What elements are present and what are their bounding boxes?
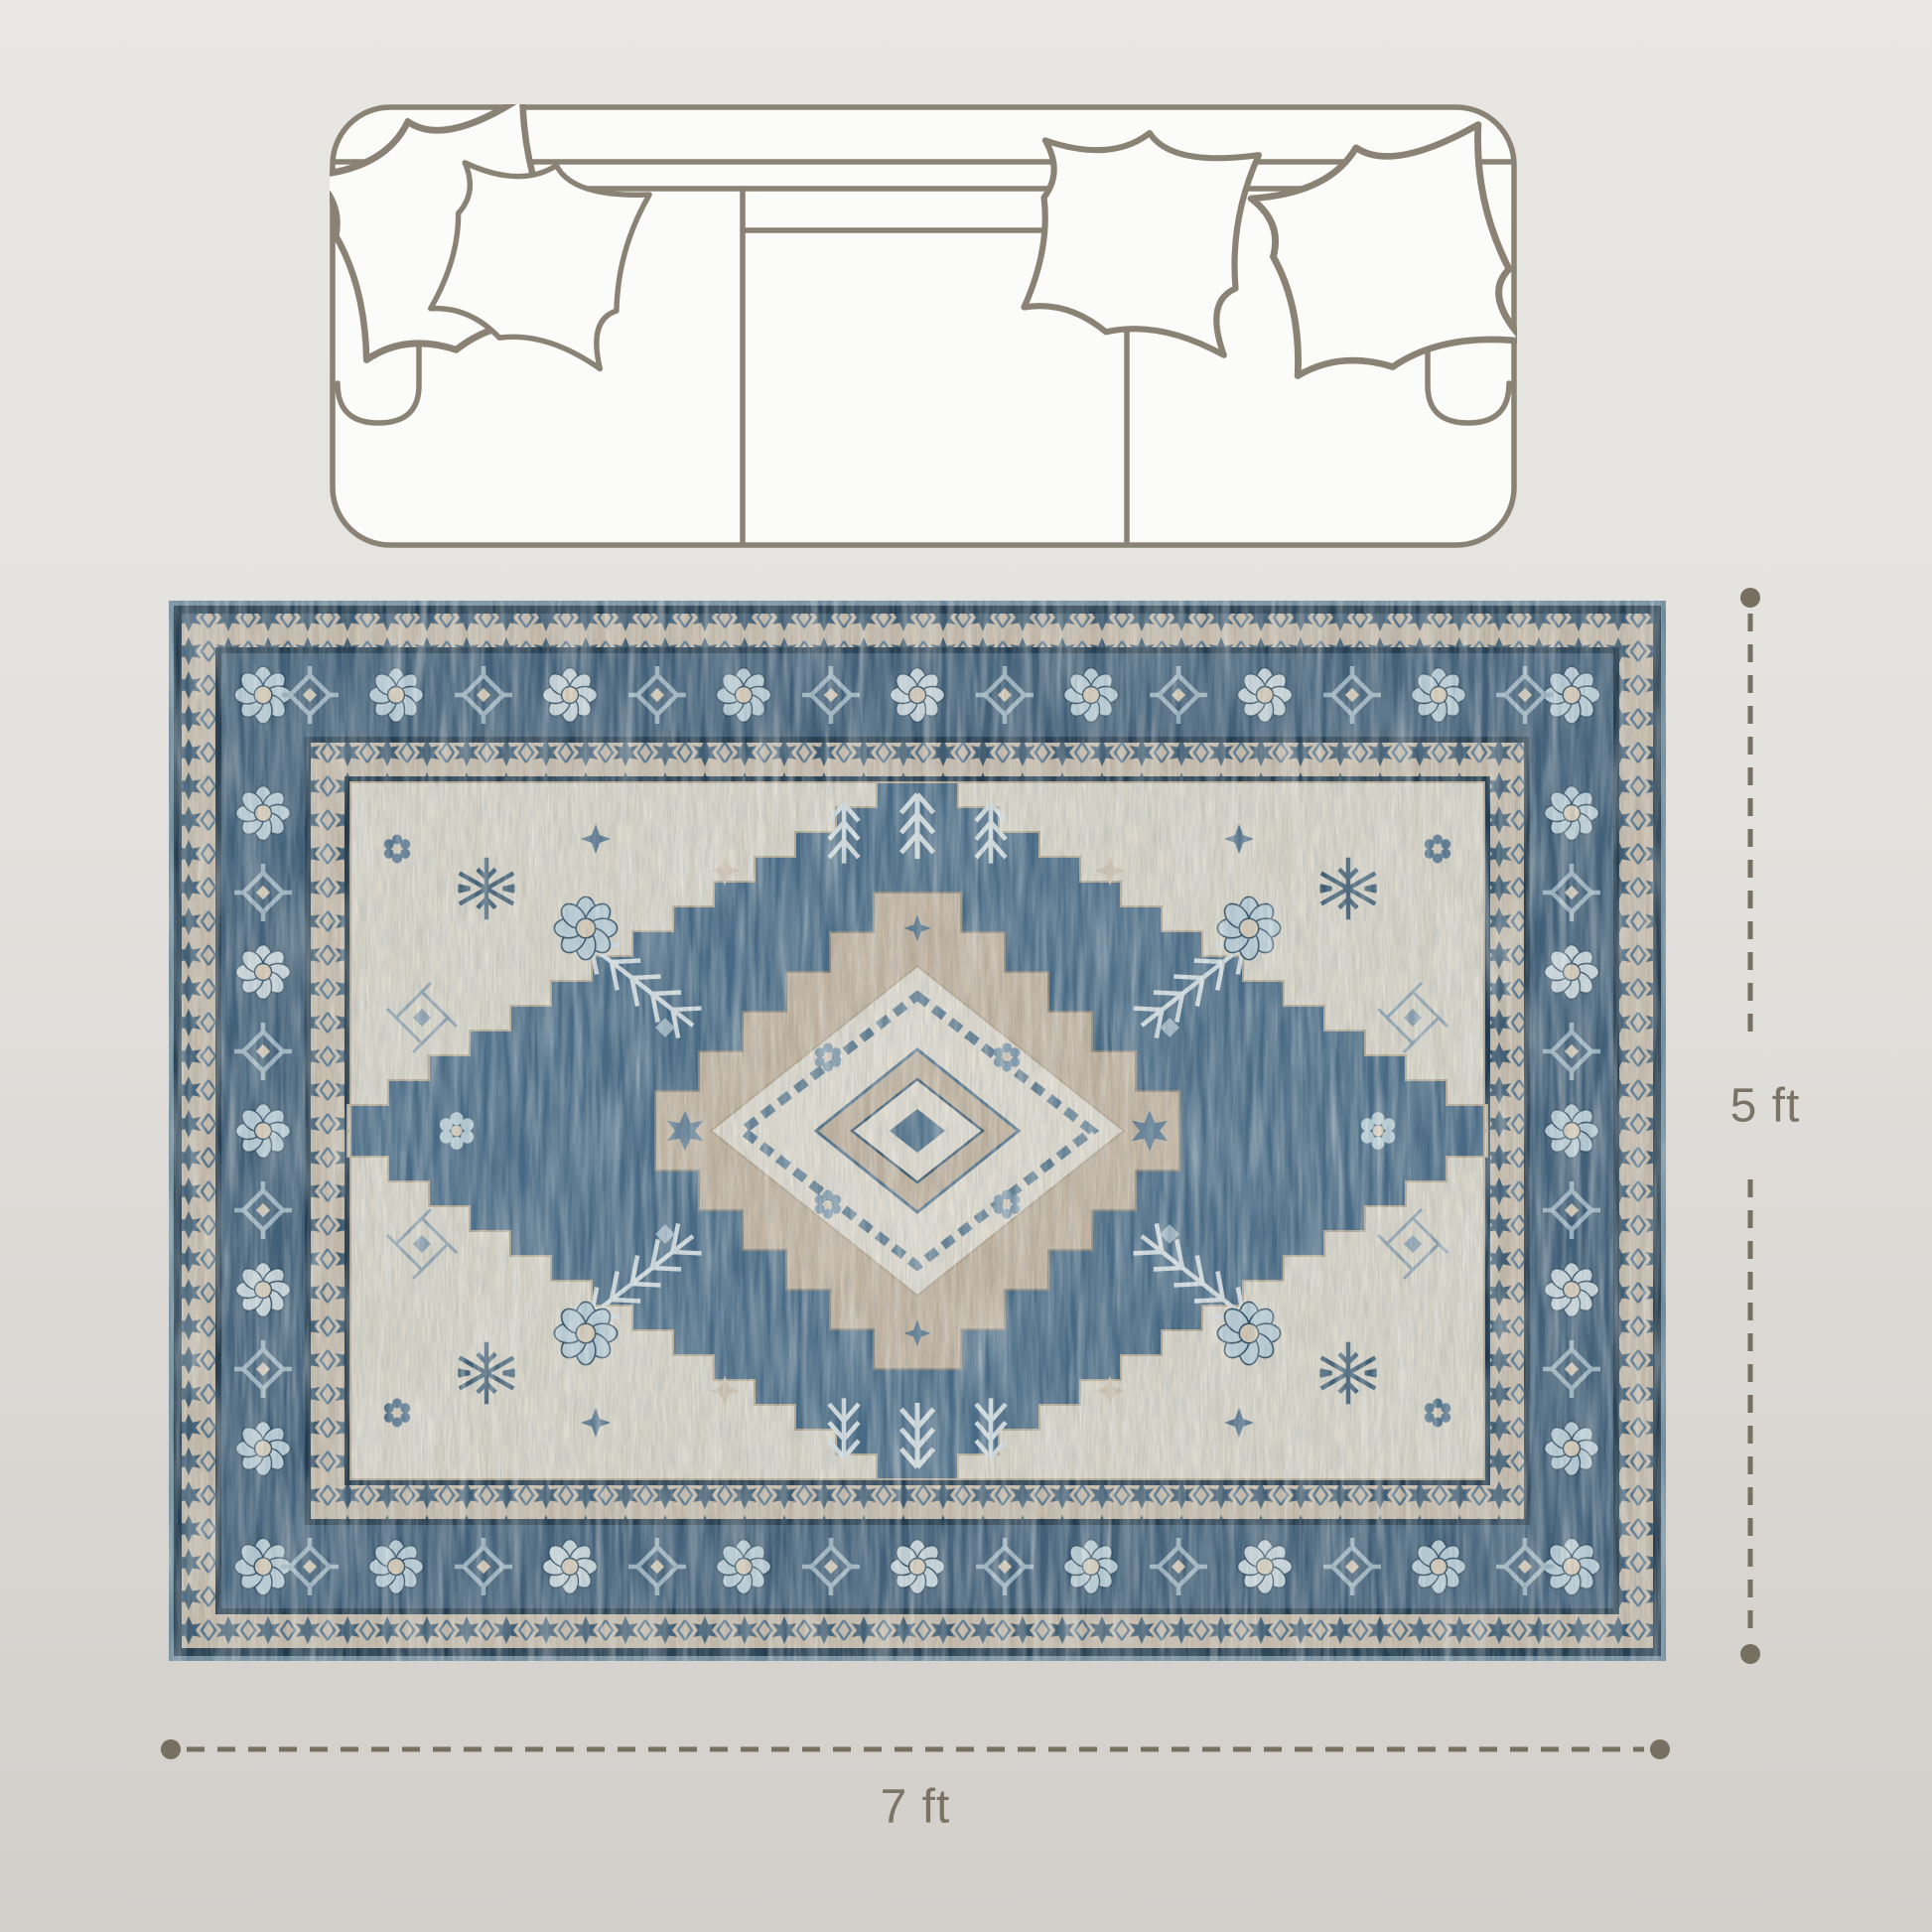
height-line-bottom-dot [1740,1644,1760,1664]
width-dimension-line [161,1725,1670,1774]
width-line-left-dot [161,1739,181,1759]
width-dimension-label: 7 ft [881,1780,951,1835]
height-line-top-dot [1740,588,1760,608]
height-dimension-label: 5 ft [1730,1079,1801,1134]
width-line-right-dot [1650,1739,1670,1759]
persian-rug-image [169,601,1666,1661]
sofa-top-view-icon [330,104,1517,548]
dimension-diagram: 5 ft 7 ft [0,0,1932,1932]
